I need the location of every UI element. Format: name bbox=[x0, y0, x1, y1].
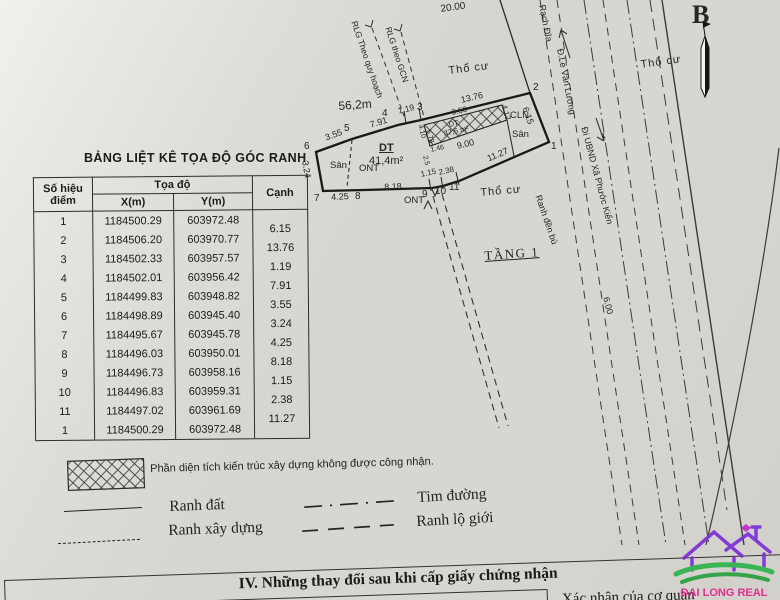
col-header-edge: Cạnh bbox=[252, 175, 307, 209]
dai-long-real-logo: ĐẠI LONG REAL bbox=[668, 514, 780, 600]
col-header-y: Y(m) bbox=[174, 193, 253, 211]
yard-divider-line bbox=[347, 140, 352, 187]
road-lines bbox=[540, 0, 779, 545]
table-row: 2 1184506.20 603970.77 13.76 bbox=[34, 229, 308, 250]
label-cln: CLN bbox=[510, 111, 529, 121]
top-boundary-line bbox=[500, 0, 530, 93]
construction-boundary-lines bbox=[433, 194, 508, 428]
scanned-land-document: B 20.00 Thổ cư Thổ cư Thổ cư RLG Theo qu… bbox=[0, 0, 780, 600]
dim-edge-8-9: 8.18 bbox=[384, 182, 402, 192]
coordinate-table: Số hiệu điểm Tọa độ Cạnh X(m) Y(m) 1 118… bbox=[33, 175, 310, 441]
label-san-left: Sân bbox=[330, 161, 347, 171]
legend-label-ranh-dat: Ranh đất bbox=[169, 496, 225, 516]
table-row: 11 1184497.02 603961.69 11.27 bbox=[35, 400, 309, 421]
point-1: 1 bbox=[551, 142, 557, 152]
label-san-right: Sân bbox=[512, 130, 529, 140]
table-row: 10 1184496.83 603959.31 2.38 bbox=[35, 381, 309, 402]
point-5: 5 bbox=[344, 124, 350, 134]
label-ont-bottom: ONT bbox=[404, 196, 424, 206]
label-dt-area: 41,4m² bbox=[369, 156, 403, 167]
label-dt: DT bbox=[379, 143, 394, 154]
north-arrow-icon bbox=[701, 21, 711, 97]
table-row: 4 1184502.01 603956.42 7.91 bbox=[34, 267, 308, 288]
col-header-coords: Tọa độ bbox=[92, 176, 252, 194]
table-row: 8 1184496.03 603950.01 8.18 bbox=[35, 343, 309, 364]
point-3: 3 bbox=[417, 103, 423, 113]
table-row: 7 1184495.67 603945.78 4.25 bbox=[35, 324, 309, 345]
point-10: 10 bbox=[435, 187, 446, 197]
compass-label: B bbox=[692, 2, 709, 28]
point-8: 8 bbox=[355, 192, 361, 202]
point-11: 11 bbox=[449, 183, 459, 193]
legend-hatch-swatch bbox=[66, 458, 145, 492]
table-title: BẢNG LIỆT KÊ TỌA ĐỘ GÓC RANH bbox=[84, 151, 307, 165]
dim-frontage: 56,2m bbox=[338, 98, 372, 112]
col-header-x: X(m) bbox=[93, 193, 174, 211]
section-iv-vline bbox=[547, 589, 549, 600]
col-header-point: Số hiệu điểm bbox=[33, 177, 92, 212]
table-row: 6 1184498.89 603945.40 3.24 bbox=[34, 305, 308, 326]
point-7: 7 bbox=[314, 194, 320, 204]
point-2: 2 bbox=[533, 83, 539, 93]
table-row: 9 1184496.73 603958.16 1.15 bbox=[35, 362, 309, 383]
table-row: 5 1184499.83 603948.82 3.55 bbox=[34, 286, 308, 307]
dim-edge-7-8: 4.25 bbox=[331, 192, 349, 202]
table-row: 1 1184500.29 603972.48 6.15 bbox=[34, 209, 308, 231]
legend-label-tim-duong: Tim đường bbox=[417, 485, 487, 507]
label-tang-1: TẦNG 1 bbox=[484, 245, 540, 262]
logo-text: ĐẠI LONG REAL bbox=[681, 587, 768, 599]
legend-label-ranh-xay-dung: Ranh xây dựng bbox=[168, 519, 263, 540]
